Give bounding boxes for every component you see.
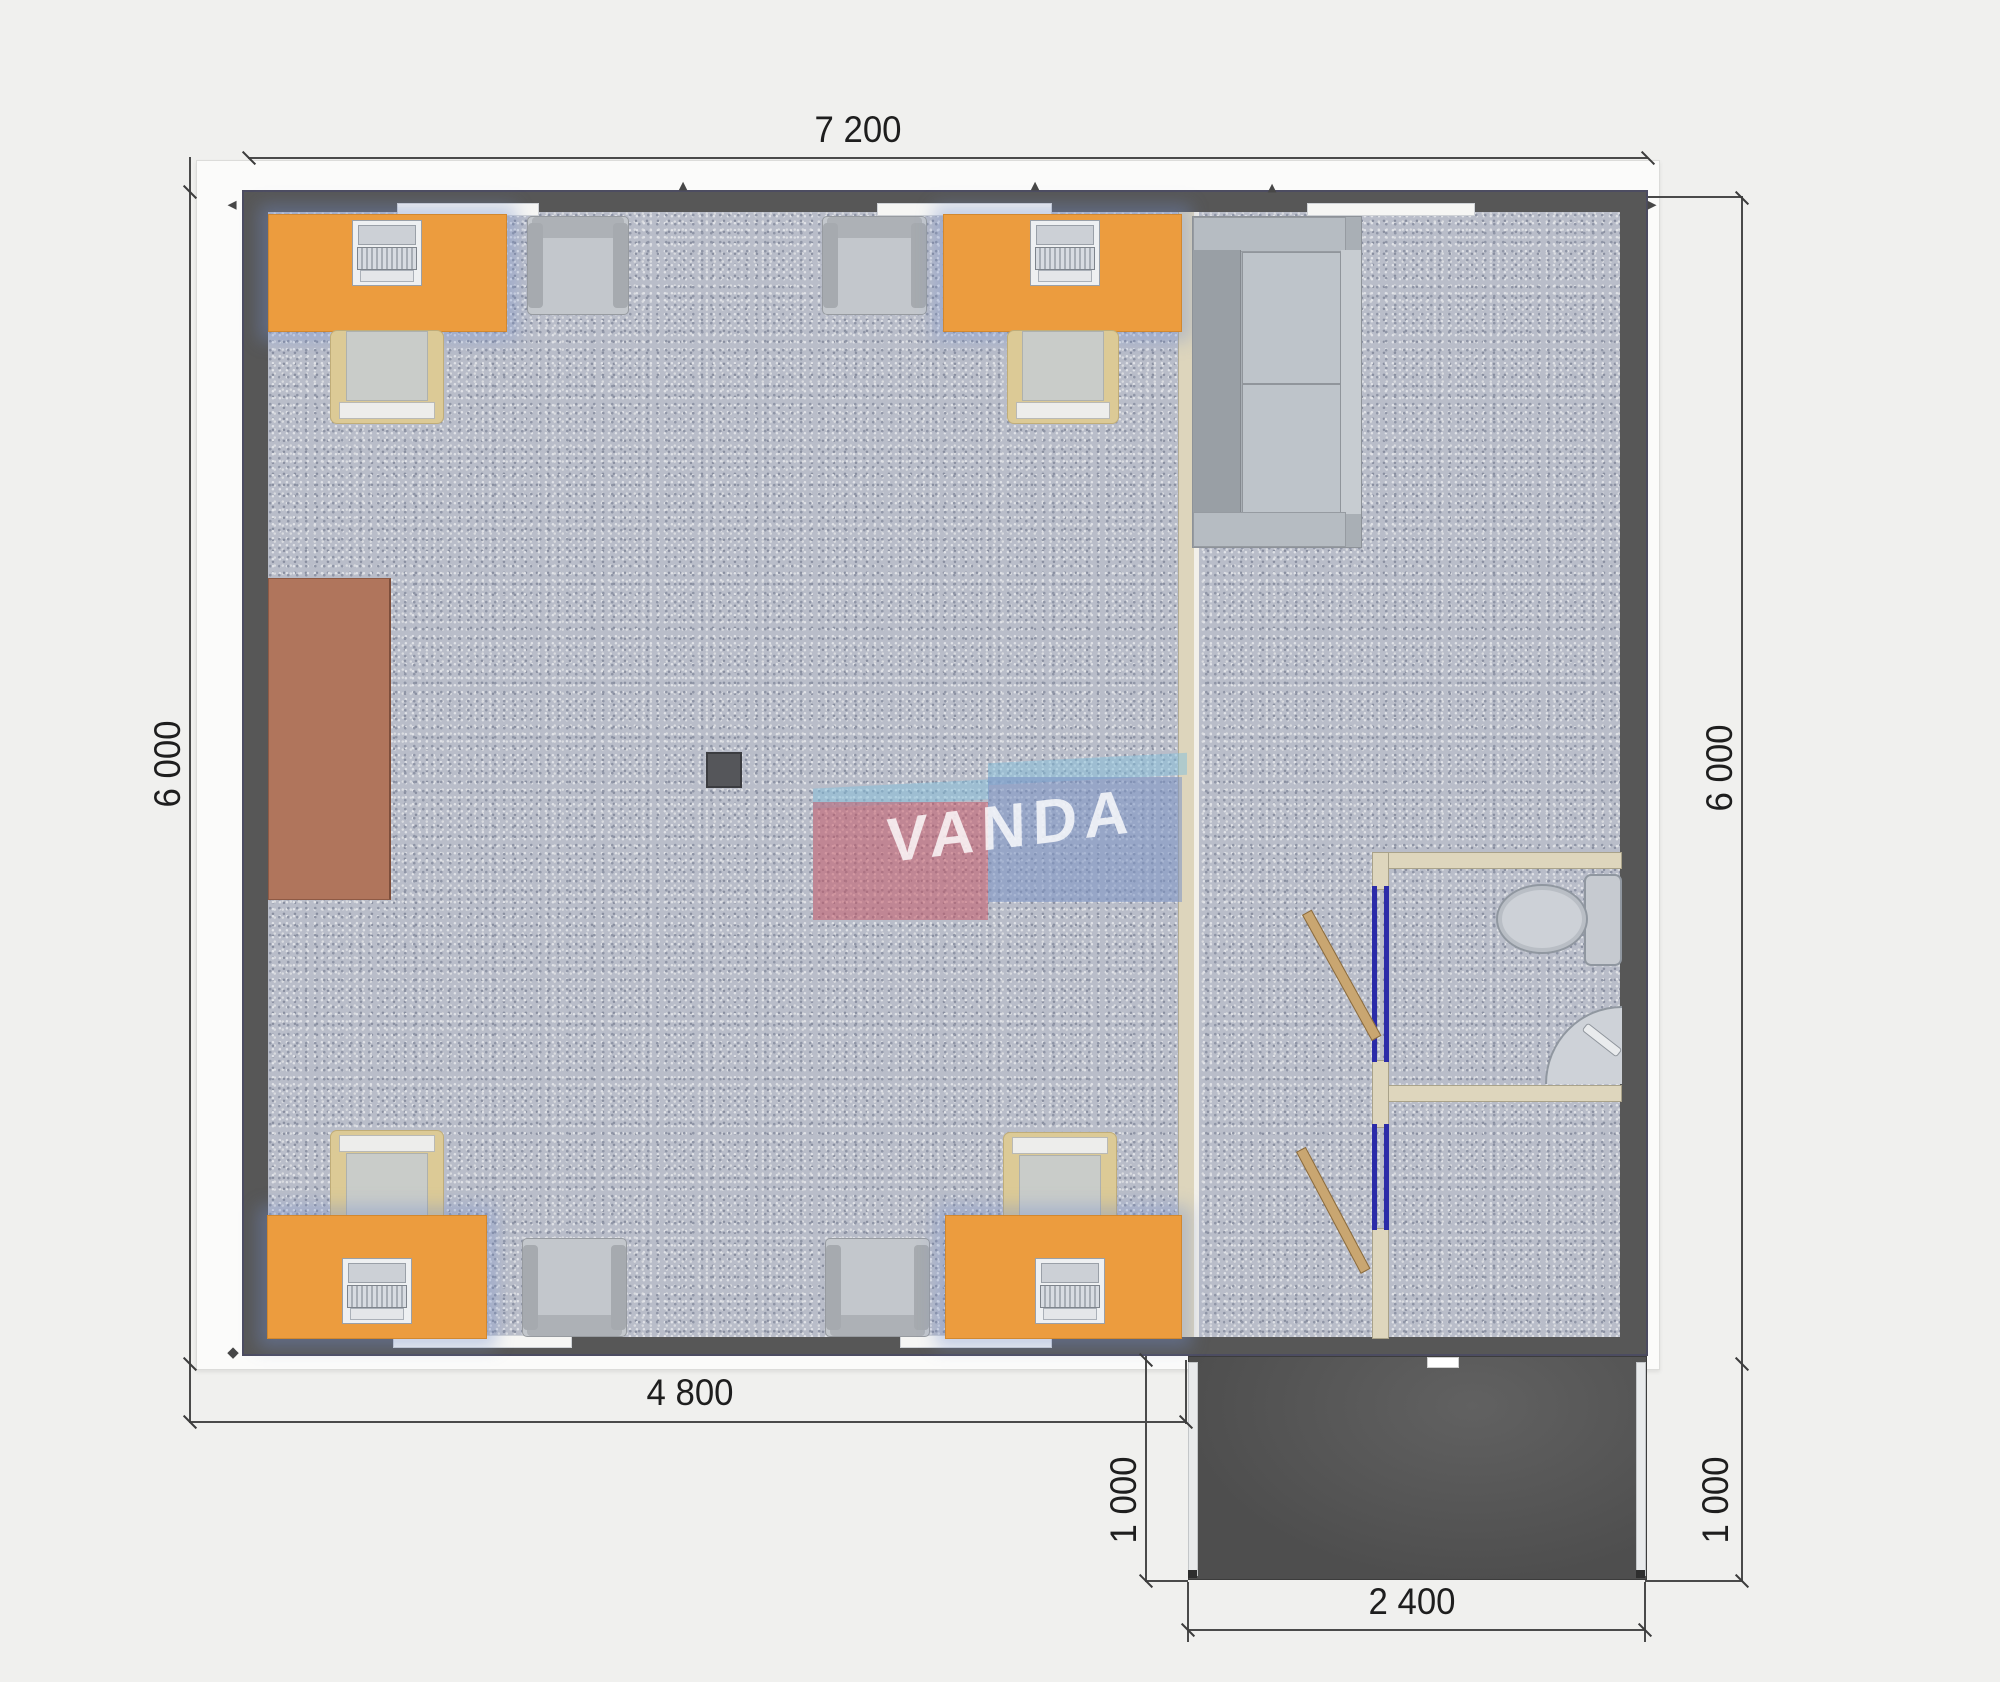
armchair-arm-right xyxy=(911,223,926,308)
office-chair-top-right xyxy=(1007,330,1119,424)
dimension-label-porch-depth-left: 1 000 xyxy=(1103,1456,1145,1543)
sofa-armrest-top xyxy=(1193,217,1346,252)
entry-door-threshold xyxy=(1427,1357,1459,1368)
office-chair-bottom-left xyxy=(330,1130,444,1224)
bathroom-door-frame xyxy=(1384,886,1389,1062)
dimension-extension-porch-br xyxy=(1645,1580,1742,1582)
dimension-line-top xyxy=(248,157,1648,159)
chair-seat xyxy=(1022,331,1103,401)
armchair-arm-left xyxy=(523,1245,538,1330)
chair-backrest xyxy=(339,402,435,420)
chair-seat xyxy=(346,1153,429,1223)
computer-screen xyxy=(1041,1263,1098,1283)
bathroom-wall-top xyxy=(1372,852,1622,869)
storage-door-frame xyxy=(1384,1124,1389,1230)
sofa-cushion xyxy=(1242,384,1341,516)
armchair-arm-right xyxy=(611,1245,626,1330)
arrow-mark-corner-bl: ◆ xyxy=(227,1343,239,1361)
dimension-extension-porch-bl xyxy=(1146,1580,1188,1582)
armchair-backrest xyxy=(827,217,922,238)
dimension-label-office-width: 4 800 xyxy=(646,1372,733,1414)
armchair-arm-right xyxy=(914,1245,929,1330)
armchair-backrest xyxy=(527,1315,622,1336)
toilet-tank xyxy=(1584,874,1622,966)
bathroom-wall-left-a xyxy=(1372,852,1389,890)
window-lounge-top xyxy=(1307,203,1475,216)
office-chair-bottom-right xyxy=(1003,1132,1117,1226)
sofa-armrest-bottom xyxy=(1193,512,1346,547)
dimension-label-porch-width: 2 400 xyxy=(1368,1581,1455,1623)
storage-door-frame xyxy=(1372,1124,1377,1230)
armchair-bottom-1 xyxy=(522,1238,627,1337)
sofa-backrest xyxy=(1193,250,1241,514)
bathroom-wall-mid xyxy=(1372,1085,1622,1102)
computer-keyboard xyxy=(347,1285,407,1309)
armchair-bottom-2 xyxy=(825,1238,930,1337)
dimension-extension-partition xyxy=(1185,1360,1187,1424)
computer-keyboard xyxy=(357,247,417,271)
computer-tray xyxy=(1043,1308,1097,1320)
computer-screen xyxy=(1036,225,1093,245)
computer-top-right xyxy=(1030,220,1100,286)
dimension-line-porch-width xyxy=(1188,1629,1645,1631)
interior-floor xyxy=(268,212,1620,1337)
computer-bottom-left xyxy=(342,1258,412,1324)
dimension-line-porch-depth-left xyxy=(1145,1356,1147,1582)
computer-screen xyxy=(348,1263,405,1283)
toilet-bowl xyxy=(1496,884,1588,954)
entry-porch xyxy=(1188,1356,1647,1580)
chair-backrest xyxy=(1016,402,1111,420)
porch-edge-left xyxy=(1188,1362,1198,1576)
office-chair-top-left xyxy=(330,330,444,424)
dimension-line-right xyxy=(1741,196,1743,1582)
arrow-mark-corner-tr: ► xyxy=(1645,197,1660,214)
arrow-mark-top-3: ▲ xyxy=(1265,180,1280,197)
armchair-arm-right xyxy=(613,223,628,308)
armchair-top-1 xyxy=(527,216,629,315)
arrow-mark-top-2: ▲ xyxy=(1028,178,1043,195)
porch-edge-right xyxy=(1636,1362,1646,1576)
computer-keyboard xyxy=(1040,1285,1100,1309)
bathroom-wall-left-b xyxy=(1372,1060,1389,1128)
porch-corner-post xyxy=(1636,1570,1645,1578)
bathroom-wall-left-c xyxy=(1372,1228,1389,1339)
computer-bottom-right xyxy=(1035,1258,1105,1324)
dimension-label-right-height: 6 000 xyxy=(1699,724,1741,811)
porch-corner-post xyxy=(1188,1570,1197,1578)
armchair-backrest xyxy=(532,217,624,238)
dimension-label-left-height: 6 000 xyxy=(147,720,189,807)
armchair-backrest xyxy=(830,1315,925,1336)
chair-seat xyxy=(346,331,429,401)
dimension-line-left xyxy=(189,157,191,1423)
computer-tray xyxy=(360,270,414,282)
dimension-label-porch-depth-right: 1 000 xyxy=(1695,1456,1737,1543)
computer-tray xyxy=(350,1308,404,1320)
armchair-top-2 xyxy=(822,216,927,315)
dimension-label-total-width: 7 200 xyxy=(814,109,901,151)
dimension-line-office-width xyxy=(190,1421,1186,1423)
computer-screen xyxy=(358,225,415,245)
chair-backrest xyxy=(339,1135,435,1153)
side-table xyxy=(268,578,391,900)
floor-unit xyxy=(706,752,742,788)
sofa xyxy=(1192,216,1362,548)
sofa-cushion xyxy=(1242,252,1341,384)
floor-plan-canvas: VANDA 7 200 6 000 6 000 4 800 1 000 1 00… xyxy=(0,0,2000,1682)
computer-top-left xyxy=(352,220,422,286)
arrow-mark-corner-tl: ◄ xyxy=(225,197,240,214)
armchair-arm-left xyxy=(528,223,543,308)
arrow-mark-top-1: ▲ xyxy=(676,178,691,195)
armchair-arm-left xyxy=(823,223,838,308)
sofa-front-edge xyxy=(1341,250,1361,514)
computer-tray xyxy=(1038,270,1092,282)
computer-keyboard xyxy=(1035,247,1095,271)
chair-backrest xyxy=(1012,1137,1108,1155)
dimension-extension-top-right xyxy=(1648,196,1742,198)
armchair-arm-left xyxy=(826,1245,841,1330)
